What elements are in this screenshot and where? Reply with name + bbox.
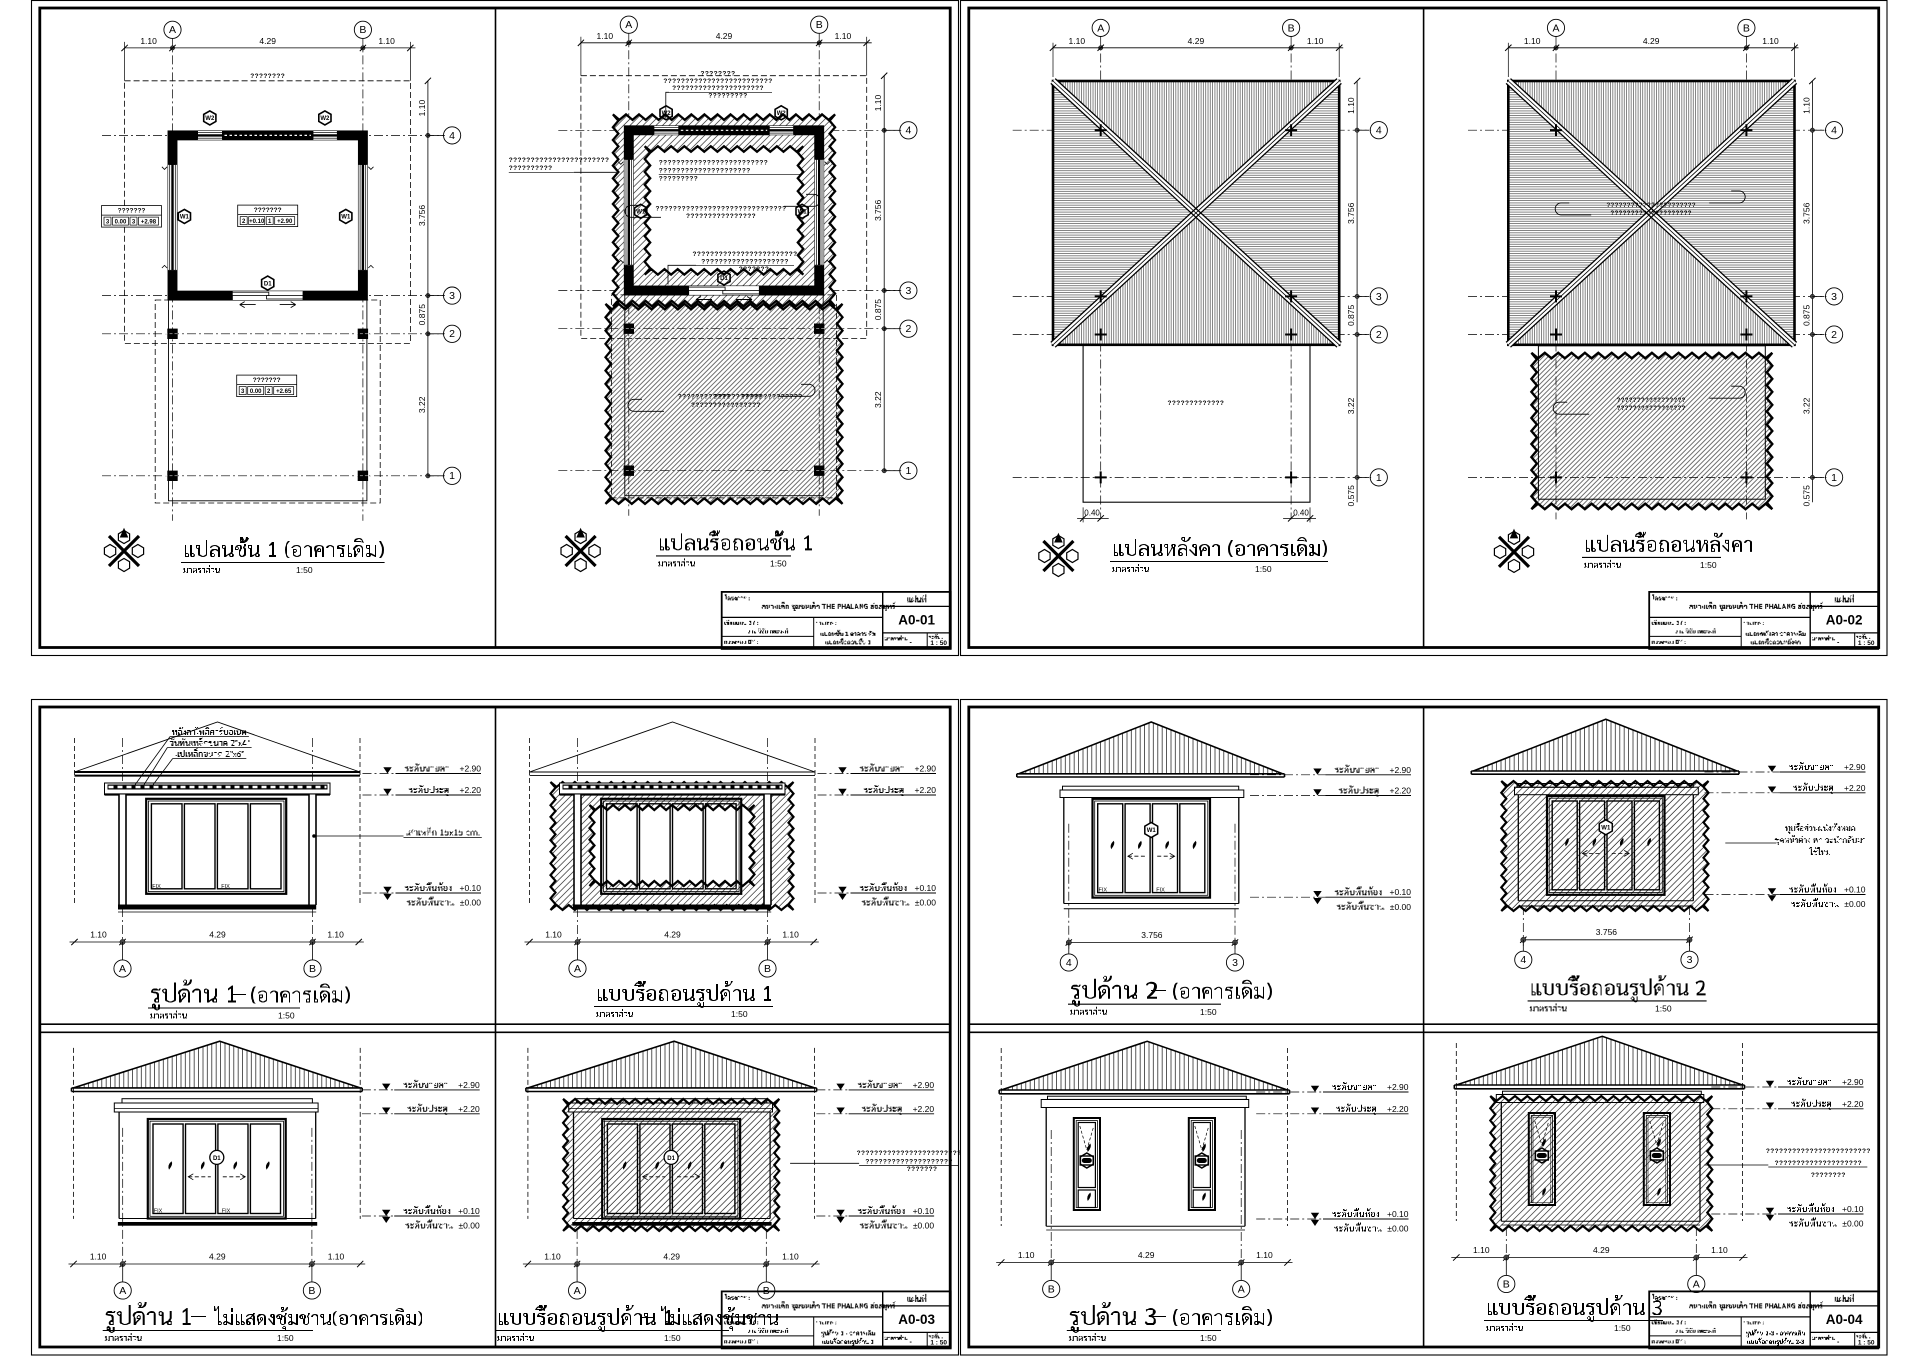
svg-text:1.10: 1.10 <box>1307 36 1324 46</box>
svg-text:FIX: FIX <box>221 884 230 890</box>
svg-text:3: 3 <box>579 533 582 539</box>
svg-text:D1: D1 <box>264 281 272 287</box>
svg-text:A: A <box>169 24 176 36</box>
svg-text:3.756: 3.756 <box>873 199 883 221</box>
svg-text:0.875: 0.875 <box>1346 304 1356 326</box>
svg-text:4: 4 <box>449 130 455 142</box>
svg-text:±0.00: ±0.00 <box>458 1221 479 1231</box>
svg-text:1.10: 1.10 <box>1018 1250 1035 1260</box>
svg-text:D1: D1 <box>213 1156 221 1162</box>
svg-text:??????????????????????????????: ?????????????????????????????? <box>655 205 786 212</box>
svg-text:+2.90: +2.90 <box>458 1080 480 1090</box>
svg-text:A0-01: A0-01 <box>898 612 935 627</box>
svg-text:+0.10: +0.10 <box>913 1206 935 1216</box>
svg-text:???????: ??????? <box>253 377 281 384</box>
svg-text:????????????????????????: ???????????????????????? <box>693 251 798 258</box>
svg-text:0.575: 0.575 <box>1346 485 1356 507</box>
svg-text:1.10: 1.10 <box>378 36 395 46</box>
svg-text:????????????????????: ???????????????????? <box>1775 1160 1862 1167</box>
svg-text:2: 2 <box>449 328 455 340</box>
svg-text:1 : 50: 1 : 50 <box>1858 640 1875 647</box>
svg-text:±0.00: ±0.00 <box>915 898 936 908</box>
svg-text:+2.90: +2.90 <box>1844 762 1866 772</box>
svg-text:B: B <box>1288 22 1295 34</box>
svg-text:4.29: 4.29 <box>1593 1245 1610 1255</box>
svg-text:1.10: 1.10 <box>1346 97 1356 114</box>
svg-text:1:50: 1:50 <box>664 1333 681 1343</box>
svg-text:????????????????????: ???????????????????? <box>865 1158 952 1165</box>
svg-text:3: 3 <box>1232 957 1238 969</box>
svg-text:0.575: 0.575 <box>1801 485 1811 507</box>
svg-text:?????????????????????????: ????????????????????????? <box>659 159 768 166</box>
svg-text:FIX: FIX <box>152 884 161 890</box>
svg-text:A: A <box>119 963 126 975</box>
svg-text:1:50: 1:50 <box>277 1333 294 1343</box>
svg-text:4: 4 <box>1066 957 1072 969</box>
svg-text:???????: ??????? <box>907 1166 938 1173</box>
svg-text:1.10: 1.10 <box>835 31 852 41</box>
svg-text:3.22: 3.22 <box>873 391 883 408</box>
svg-text:+2.20: +2.20 <box>1844 783 1866 793</box>
svg-text:????????????????: ???????????????? <box>686 213 756 220</box>
svg-text:W1: W1 <box>1147 828 1157 834</box>
svg-text:3.22: 3.22 <box>1801 397 1811 414</box>
svg-text:????????????????????: ???????????????????? <box>1611 211 1692 217</box>
svg-text:??????????????????????: ?????????????????????? <box>1606 203 1695 209</box>
svg-text:??????????: ?????????? <box>509 165 553 172</box>
svg-text:1.10: 1.10 <box>1711 1245 1728 1255</box>
svg-text:1:50: 1:50 <box>1655 1003 1672 1013</box>
svg-text:+2.90: +2.90 <box>1387 1082 1409 1092</box>
svg-text:+2.90: +2.90 <box>1389 765 1411 775</box>
svg-text:1.10: 1.10 <box>328 1252 345 1262</box>
svg-text:1.10: 1.10 <box>1524 36 1541 46</box>
svg-text:+2.20: +2.20 <box>458 1104 480 1114</box>
svg-text:+2.90: +2.90 <box>913 1080 935 1090</box>
svg-text:+0.10: +0.10 <box>1842 1204 1864 1214</box>
svg-text:A: A <box>1693 1278 1700 1290</box>
svg-text:3: 3 <box>905 285 911 297</box>
svg-text:±0.00: ±0.00 <box>460 898 481 908</box>
svg-text:+0.10: +0.10 <box>458 1206 480 1216</box>
svg-text:1.10: 1.10 <box>1069 36 1086 46</box>
svg-text:+2.20: +2.20 <box>1387 1104 1409 1114</box>
svg-text:?????????: ????????? <box>659 175 698 182</box>
svg-text:4.29: 4.29 <box>663 1252 680 1262</box>
svg-text:B: B <box>308 1285 315 1297</box>
svg-text:2: 2 <box>905 323 911 335</box>
svg-text:A0-04: A0-04 <box>1826 1312 1863 1327</box>
svg-text:A: A <box>1552 22 1559 34</box>
svg-text:A: A <box>1097 22 1104 34</box>
svg-text:A: A <box>625 19 632 31</box>
svg-text:1:50: 1:50 <box>278 1011 295 1021</box>
svg-text:B: B <box>309 963 316 975</box>
svg-text:FIX: FIX <box>1156 888 1165 894</box>
svg-text:FIX: FIX <box>1099 888 1108 894</box>
svg-text:3.756: 3.756 <box>1801 202 1811 224</box>
svg-text:4.29: 4.29 <box>716 31 733 41</box>
svg-text:4.29: 4.29 <box>209 930 226 940</box>
svg-text:3: 3 <box>1513 534 1516 540</box>
svg-text:3: 3 <box>1831 291 1837 303</box>
svg-text:????????: ???????? <box>1811 1172 1846 1179</box>
svg-text:B: B <box>1743 22 1750 34</box>
svg-text:1.10: 1.10 <box>782 930 799 940</box>
svg-text:±0.00: ±0.00 <box>1844 899 1865 909</box>
svg-text:1:50: 1:50 <box>1700 560 1717 570</box>
svg-text:4.29: 4.29 <box>259 36 276 46</box>
svg-text:FIX: FIX <box>154 1209 163 1215</box>
svg-text:A: A <box>119 1285 126 1297</box>
svg-text:?????????????????????: ????????????????????? <box>672 85 764 92</box>
svg-text:3.756: 3.756 <box>1141 930 1163 940</box>
svg-text:W1: W1 <box>180 215 190 221</box>
svg-text:A: A <box>574 963 581 975</box>
svg-text:4: 4 <box>1376 125 1382 137</box>
svg-text:1.10: 1.10 <box>1256 1250 1273 1260</box>
svg-text:B: B <box>1503 1278 1510 1290</box>
svg-text:2: 2 <box>1376 329 1382 341</box>
svg-text:0.00: 0.00 <box>250 389 262 395</box>
svg-text:±0.00: ±0.00 <box>1387 1224 1408 1234</box>
svg-text:W1: W1 <box>798 210 808 216</box>
svg-text:1:50: 1:50 <box>1614 1323 1631 1333</box>
svg-text:???????: ??????? <box>254 207 282 214</box>
svg-text:???????: ??????? <box>118 208 146 215</box>
svg-text:+2.90: +2.90 <box>914 764 936 774</box>
svg-text:W1: W1 <box>636 210 646 216</box>
svg-text:????????: ???????? <box>701 71 736 78</box>
svg-text:1: 1 <box>1831 472 1837 484</box>
svg-text:+0.10: +0.10 <box>914 883 936 893</box>
svg-text:1.10: 1.10 <box>90 1252 107 1262</box>
svg-text:+0.10: +0.10 <box>249 219 265 225</box>
svg-text:4.29: 4.29 <box>1188 36 1205 46</box>
svg-text:B: B <box>359 24 366 36</box>
svg-text:??????????????: ?????????????? <box>741 393 802 400</box>
svg-text:????????????????????: ???????????????????? <box>701 258 788 265</box>
svg-text:3: 3 <box>123 533 126 539</box>
svg-text:W2: W2 <box>205 116 215 122</box>
svg-text:0.875: 0.875 <box>873 299 883 321</box>
svg-text:A0-03: A0-03 <box>898 1312 935 1327</box>
svg-text:3: 3 <box>1057 538 1060 544</box>
svg-text:+0.10: +0.10 <box>1844 885 1866 895</box>
svg-text:D1: D1 <box>667 1156 675 1162</box>
svg-text:FIX: FIX <box>222 1209 231 1215</box>
svg-text:0.40: 0.40 <box>1084 508 1100 517</box>
svg-text:0.00: 0.00 <box>115 219 127 225</box>
svg-text:1.10: 1.10 <box>597 31 614 41</box>
svg-text:0.875: 0.875 <box>1801 304 1811 326</box>
svg-text:0.40: 0.40 <box>1293 508 1309 517</box>
svg-text:1: 1 <box>449 470 455 482</box>
svg-text:±0.00: ±0.00 <box>913 1221 934 1231</box>
svg-text:B: B <box>816 19 823 31</box>
svg-text:2: 2 <box>1831 329 1837 341</box>
svg-text:1 : 50: 1 : 50 <box>930 1339 947 1346</box>
svg-text:+2.90: +2.90 <box>459 764 481 774</box>
svg-text:+2.20: +2.20 <box>913 1104 935 1114</box>
svg-text:????????????????????????: ???????????????????????? <box>857 1150 962 1157</box>
svg-text:0.875: 0.875 <box>417 304 427 326</box>
svg-text:???????: ??????? <box>739 266 770 273</box>
svg-text:+2.20: +2.20 <box>914 785 936 795</box>
svg-text:?????????????????????: ????????????????????? <box>659 167 751 174</box>
svg-text:D1: D1 <box>720 276 728 282</box>
svg-text:B: B <box>764 963 771 975</box>
svg-text:1: 1 <box>1376 472 1382 484</box>
svg-text:????????????????????????: ???????????????????????? <box>1766 1148 1871 1155</box>
svg-text:?????????????????: ????????????????? <box>1617 398 1686 404</box>
svg-text:3: 3 <box>1376 291 1382 303</box>
svg-text:+2.98: +2.98 <box>141 219 157 225</box>
svg-text:?????????????????????????: ????????????????????????? <box>663 78 772 85</box>
svg-text:????????????????: ???????????????? <box>691 402 761 409</box>
svg-text:1:50: 1:50 <box>1200 1333 1217 1343</box>
svg-text:W1: W1 <box>341 215 351 221</box>
svg-text:4.29: 4.29 <box>664 930 681 940</box>
svg-text:1 : 50: 1 : 50 <box>1858 1339 1875 1346</box>
svg-text:3: 3 <box>449 290 455 302</box>
svg-text:1.10: 1.10 <box>327 930 344 940</box>
svg-text:+2.65: +2.65 <box>276 389 292 395</box>
svg-text:3.756: 3.756 <box>1346 202 1356 224</box>
svg-text:1:50: 1:50 <box>296 565 313 575</box>
svg-text:A0-02: A0-02 <box>1826 612 1863 627</box>
svg-text:?????????????????: ????????????????? <box>1617 406 1686 412</box>
svg-text:+0.10: +0.10 <box>1389 887 1411 897</box>
svg-text:3.22: 3.22 <box>417 396 427 413</box>
svg-text:+2.20: +2.20 <box>459 785 481 795</box>
svg-text:+0.10: +0.10 <box>459 883 481 893</box>
svg-text:???????????????????????: ??????????????????????? <box>509 157 610 164</box>
svg-text:1.10: 1.10 <box>782 1252 799 1262</box>
svg-text:3.22: 3.22 <box>1346 397 1356 414</box>
svg-text:1.10: 1.10 <box>544 1252 561 1262</box>
svg-text:W2: W2 <box>320 116 330 122</box>
svg-text:1.10: 1.10 <box>545 930 562 940</box>
svg-text:3.756: 3.756 <box>1596 927 1618 937</box>
svg-text:1.10: 1.10 <box>1801 97 1811 114</box>
svg-text:4.29: 4.29 <box>1138 1250 1155 1260</box>
svg-text:1:50: 1:50 <box>1200 1007 1217 1017</box>
svg-text:????????: ???????? <box>250 73 285 80</box>
svg-text:+2.20: +2.20 <box>1842 1099 1864 1109</box>
svg-text:4: 4 <box>905 125 911 137</box>
svg-text:W2: W2 <box>662 111 672 117</box>
svg-text:1: 1 <box>905 465 911 477</box>
svg-text:3.756: 3.756 <box>417 205 427 227</box>
svg-text:1.10: 1.10 <box>140 36 157 46</box>
svg-text:1.10: 1.10 <box>90 930 107 940</box>
svg-text:A: A <box>574 1285 581 1297</box>
svg-text:?????????????: ????????????? <box>1167 400 1224 407</box>
svg-text:4: 4 <box>1831 125 1837 137</box>
svg-text:4.29: 4.29 <box>209 1252 226 1262</box>
svg-text:1.10: 1.10 <box>1473 1245 1490 1255</box>
svg-text:4.29: 4.29 <box>1643 36 1660 46</box>
svg-text:+2.20: +2.20 <box>1389 786 1411 796</box>
svg-text:B: B <box>1048 1283 1055 1295</box>
svg-text:W1: W1 <box>1601 826 1611 832</box>
svg-text:W2: W2 <box>777 111 787 117</box>
svg-text:1 : 50: 1 : 50 <box>930 640 947 647</box>
svg-text:+0.10: +0.10 <box>1387 1209 1409 1219</box>
svg-text:±0.00: ±0.00 <box>1390 902 1411 912</box>
svg-text:1.10: 1.10 <box>873 94 883 111</box>
svg-text:3: 3 <box>1687 954 1693 966</box>
svg-text:+2.90: +2.90 <box>277 219 293 225</box>
svg-text:+2.90: +2.90 <box>1842 1077 1864 1087</box>
svg-text:?????????: ????????? <box>708 92 747 99</box>
svg-text:1.10: 1.10 <box>1762 36 1779 46</box>
svg-text:1:50: 1:50 <box>770 558 787 568</box>
svg-text:1:50: 1:50 <box>1255 564 1272 574</box>
svg-text:4: 4 <box>1520 954 1526 966</box>
svg-text:±0.00: ±0.00 <box>1842 1219 1863 1229</box>
svg-text:1.10: 1.10 <box>417 100 427 117</box>
svg-text:1:50: 1:50 <box>731 1009 748 1019</box>
svg-text:A: A <box>1238 1283 1245 1295</box>
